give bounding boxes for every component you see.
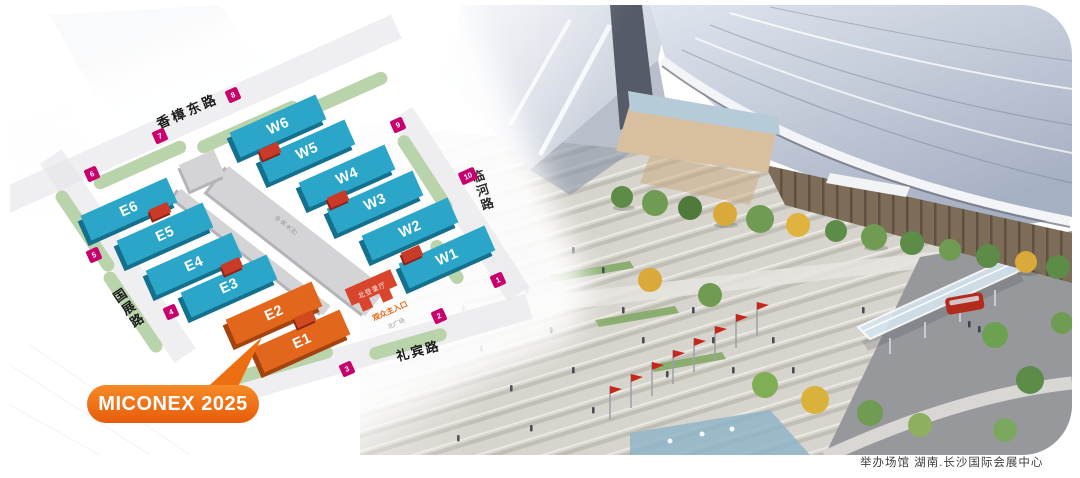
venue-map-page: { "caption": "举办场馆 湖南.长沙国际会展中心", "callou… <box>0 0 1080 478</box>
rounded-collage-frame: 中央大厅 E6 E5 E4 E3 E2 E1 W6 W5 W4 W3 W2 W1… <box>10 5 1072 455</box>
venue-caption: 举办场馆 湖南.长沙国际会展中心 <box>860 454 1043 470</box>
site-plan: 中央大厅 E6 E5 E4 E3 E2 E1 W6 W5 W4 W3 W2 W1… <box>10 5 1072 455</box>
miconex-callout: MICONEX 2025 <box>87 385 259 423</box>
